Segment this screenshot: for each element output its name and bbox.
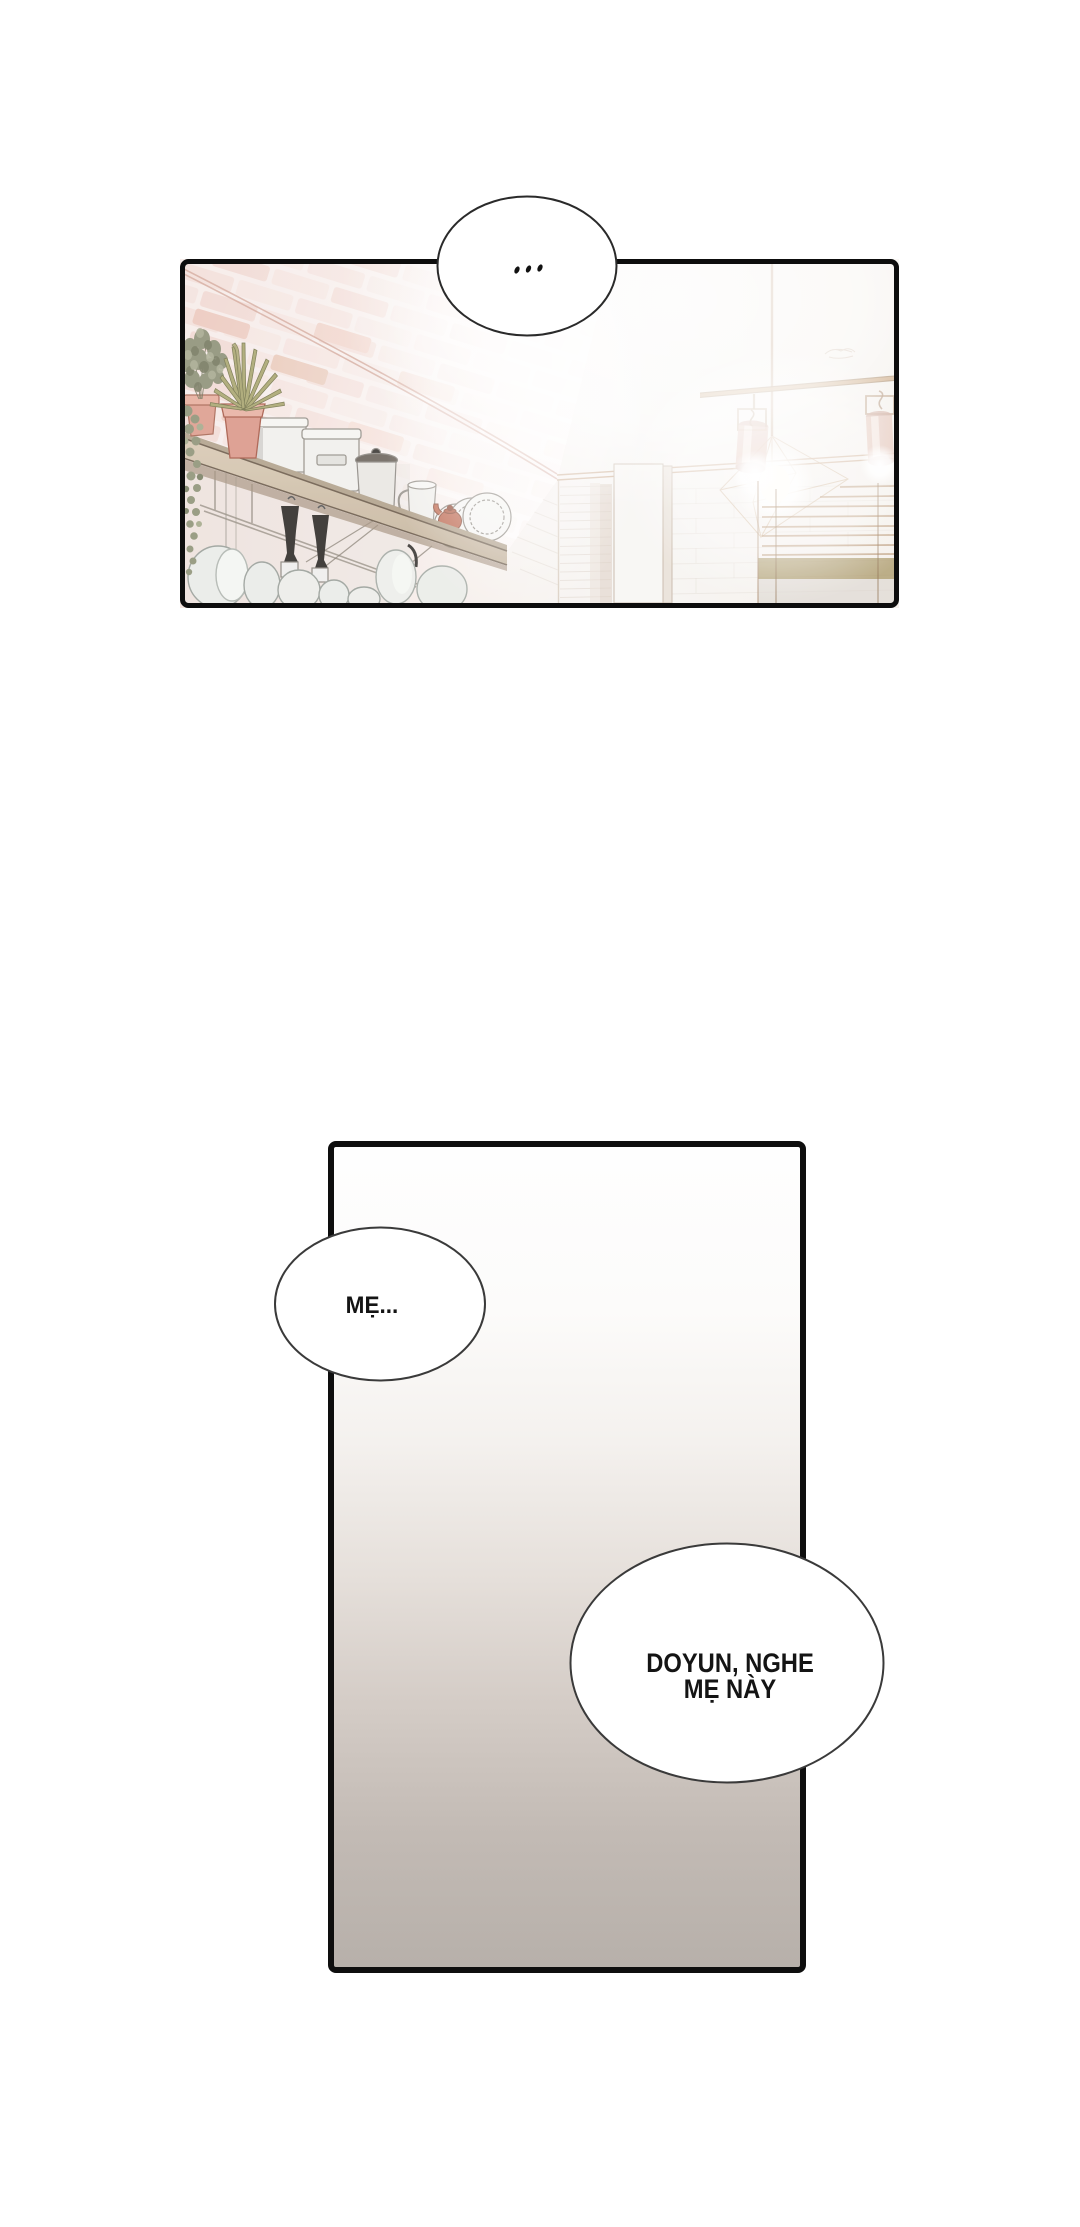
svg-text:MẸ NÀY: MẸ NÀY xyxy=(684,1674,776,1705)
svg-text:MẸ...: MẸ... xyxy=(346,1291,399,1318)
